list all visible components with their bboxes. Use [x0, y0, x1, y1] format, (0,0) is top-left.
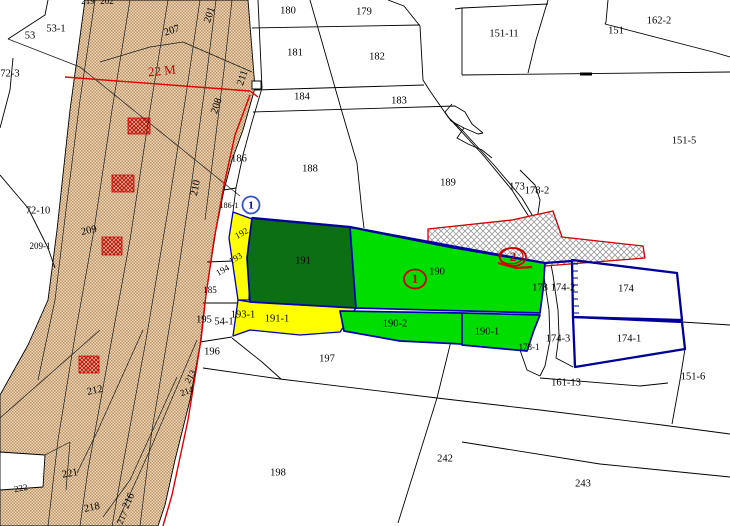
red-hatch-mark: [79, 356, 99, 373]
parcel-label-72-10: 72-10: [26, 205, 51, 216]
parcel-line: [520, 350, 540, 376]
parcel-line: [255, 85, 424, 90]
parcel-label-151-5: 151-5: [672, 135, 697, 146]
parcel-label-173: 173: [509, 181, 525, 192]
parcel-label-202: 202: [100, 0, 114, 6]
parcel-line: [528, 0, 548, 73]
parcel-label-151-6: 151-6: [681, 371, 706, 382]
parcel-label-184: 184: [294, 91, 311, 102]
blue-station-marker-1[interactable]: 1: [243, 197, 260, 214]
parcel-label-180: 180: [280, 5, 296, 16]
road-line: [203, 368, 730, 434]
parcel-label-179: 179: [356, 6, 372, 17]
parcel-label-22-m: 22 M: [147, 62, 177, 80]
parcel-label-186-1: 186-1: [220, 201, 239, 210]
parcel-line: [455, 4, 548, 9]
building-mark: [252, 81, 261, 89]
parcel-label-151: 151: [608, 25, 624, 36]
map-shapes: [0, 0, 730, 526]
parcel-line: [252, 25, 420, 28]
parcel-line: [682, 322, 730, 325]
parcel-label-243: 243: [575, 478, 591, 489]
parcel-label-209-1: 209-1: [30, 241, 51, 251]
parcel-line: [0, 175, 55, 268]
parcel-line: [672, 349, 685, 424]
parcel-label-198: 198: [270, 467, 286, 478]
parcel-label-193-1: 193-1: [231, 309, 256, 320]
parcel-line: [253, 106, 483, 133]
parcel-label-190-2: 190-2: [383, 318, 408, 329]
parcel-line: [388, 0, 463, 131]
parcel-label-178-1: 178-1: [519, 342, 540, 352]
parcel-label-181: 181: [287, 47, 303, 58]
parcel-label-185: 185: [203, 285, 217, 295]
red-hatch-mark: [112, 175, 134, 192]
parcel-label-161-13: 161-13: [551, 377, 581, 388]
red-circled-2-number: 2: [510, 249, 517, 264]
parcel-label-195: 195: [196, 314, 212, 325]
parcel-label-53-1: 53-1: [46, 23, 65, 34]
road-band: [0, 0, 255, 526]
parcel-label-242: 242: [437, 453, 453, 464]
parcel-label-151-11: 151-11: [489, 28, 518, 39]
red-hatch-mark: [102, 237, 122, 255]
red-hatch-mark: [128, 118, 150, 134]
parcel-label-219: 219: [81, 0, 95, 6]
parcel-label-190-1: 190-1: [475, 326, 500, 337]
map-viewport[interactable]: 5353-172-372-1021920220120722 M211208210…: [0, 0, 730, 526]
parcel-line: [605, 0, 608, 24]
parcel-label-183: 183: [391, 95, 407, 106]
parcel-label-174-2: 174-2: [551, 282, 576, 293]
parcel-label-191-1: 191-1: [265, 313, 290, 324]
parcel-line: [200, 337, 232, 342]
parcel-label-190: 190: [429, 266, 445, 277]
parcel-label-72-3: 72-3: [0, 68, 19, 79]
parcel-label-188: 188: [302, 163, 318, 174]
parcel-label-162-2: 162-2: [647, 15, 672, 26]
parcel-line: [310, 0, 364, 228]
map-canvas[interactable]: 5353-172-372-1021920220120722 M211208210…: [0, 0, 730, 526]
parcel-label-191: 191: [295, 255, 311, 266]
blue-station-marker-1-number: 1: [248, 200, 254, 212]
parcel-label-182: 182: [369, 51, 385, 62]
parcel-label-178-2: 178-2: [525, 185, 550, 196]
parcel-line: [398, 333, 453, 523]
parcel-label-186: 186: [231, 153, 247, 164]
parcel-label-174-3: 174-3: [546, 333, 571, 344]
parcel-label-174-1: 174-1: [617, 333, 642, 344]
road-line: [462, 442, 730, 477]
parcel-label-194: 194: [214, 262, 231, 278]
red-circled-1-number: 1: [412, 271, 419, 286]
parcel-label-174: 174: [618, 283, 635, 294]
parcel-line: [462, 72, 730, 75]
parcel-label-189: 189: [440, 177, 456, 188]
parcel-label-178: 178: [532, 282, 548, 293]
parcel-label-53: 53: [25, 30, 36, 41]
parcel-label-196: 196: [204, 346, 220, 357]
parcel-label-197: 197: [319, 353, 335, 364]
